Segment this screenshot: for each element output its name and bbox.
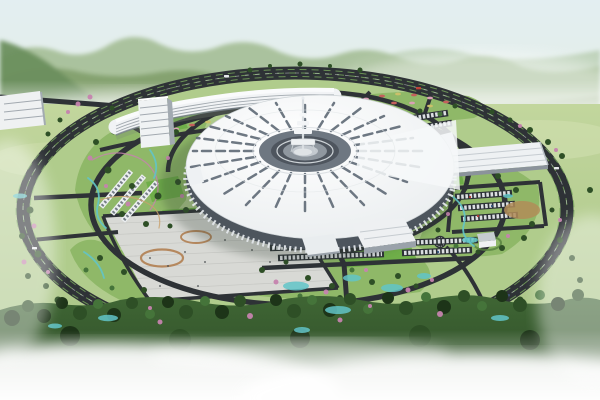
- entrance-annex-south: [302, 234, 340, 256]
- aerial-rendering: [0, 0, 600, 400]
- west-slab-building: [0, 91, 45, 130]
- tan-patch: [504, 201, 540, 219]
- office-tower-block: [138, 97, 175, 148]
- bottom-mist: [0, 330, 600, 400]
- rendering-canvas: [0, 0, 600, 400]
